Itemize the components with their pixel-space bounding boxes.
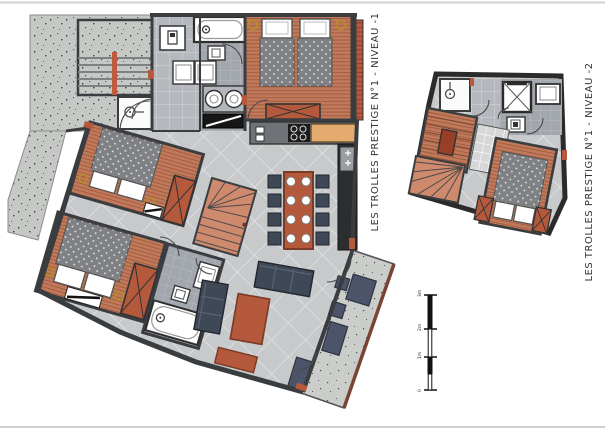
twin-bed-1 xyxy=(260,19,294,86)
dining-chair xyxy=(268,232,281,245)
plan-niveau-2 xyxy=(409,74,567,235)
plan-title-niveau-2: LES TROLLES PRESTIGE N°1 - NIVEAU -2 xyxy=(584,63,595,282)
floorplan-drawing: 3m 2m 1m 0 LES TROLLES PRESTIGE N°1 - NI… xyxy=(0,0,605,430)
plan-niveau-1 xyxy=(8,15,394,408)
bathtub xyxy=(194,17,246,42)
floorplan-sheet: 3m 2m 1m 0 LES TROLLES PRESTIGE N°1 - NI… xyxy=(0,0,605,430)
dining-chair xyxy=(316,194,329,207)
scale-bar: 3m 2m 1m 0 xyxy=(417,290,437,392)
washbasin xyxy=(536,84,560,104)
pillow xyxy=(514,205,536,224)
bath-counter xyxy=(203,114,245,128)
coffee-table xyxy=(230,294,270,345)
utility-room xyxy=(440,79,470,111)
bedroom-1 xyxy=(245,15,352,120)
twin-bed-2 xyxy=(298,19,332,86)
wardrobe xyxy=(266,104,320,119)
dining-chair xyxy=(316,175,329,188)
sheet-bottom-border xyxy=(0,426,605,428)
dining-chair xyxy=(316,213,329,226)
dining-chair xyxy=(268,194,281,207)
wood-countertop xyxy=(311,124,357,142)
wc-room xyxy=(160,26,185,50)
shower xyxy=(503,82,531,112)
double-washbasins xyxy=(203,86,245,112)
vanity-basins xyxy=(173,61,216,84)
toilet xyxy=(208,46,225,60)
scale-label: 1m xyxy=(417,352,423,359)
dining-chair xyxy=(316,232,329,245)
sheet-top-border xyxy=(0,2,605,4)
stair-handrail xyxy=(112,52,117,95)
scale-label: 0 xyxy=(417,389,423,392)
dining-chair xyxy=(268,175,281,188)
scale-label: 3m xyxy=(417,290,423,297)
dining-chair xyxy=(268,213,281,226)
kitchen-sink xyxy=(256,127,264,133)
pillow xyxy=(493,201,515,220)
plan-title-niveau-1: LES TROLLES PRESTIGE N°1 - NIVEAU -1 xyxy=(370,13,381,232)
utility-room xyxy=(118,97,152,129)
winder-stair xyxy=(409,156,465,203)
scale-label: 2m xyxy=(417,324,423,331)
stove xyxy=(288,124,310,142)
stairwell xyxy=(78,20,152,95)
kitchen-sink xyxy=(256,135,264,141)
